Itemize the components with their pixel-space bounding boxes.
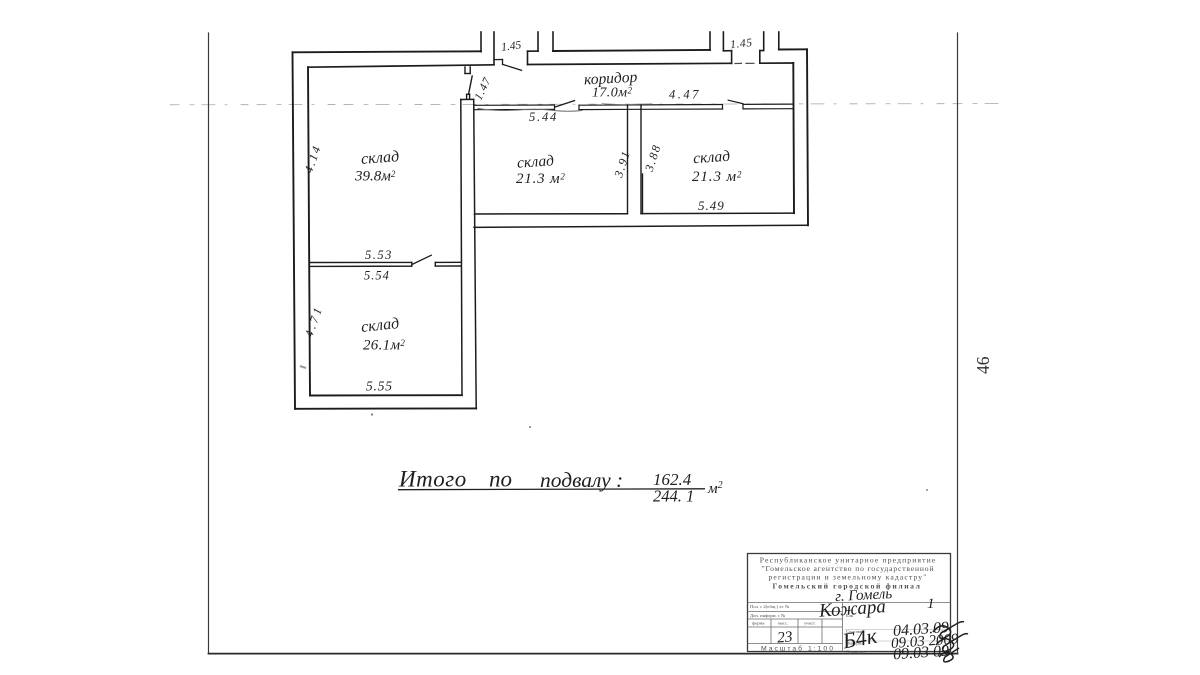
svg-text:5.54: 5.54: [364, 269, 390, 283]
svg-text:масс.: масс.: [778, 621, 788, 626]
svg-text:5.49: 5.49: [698, 198, 725, 213]
svg-text:17.0м2: 17.0м2: [592, 86, 632, 101]
svg-text:Итого: Итого: [398, 467, 467, 492]
svg-text:3.91: 3.91: [611, 148, 633, 180]
svg-text:09.03 09: 09.03 09: [893, 642, 950, 663]
svg-text:Пол. с 2(общ.) эт. №: Пол. с 2(общ.) эт. №: [750, 604, 790, 609]
svg-text:4.47: 4.47: [669, 88, 701, 102]
svg-text:регистрации и земельному кадас: регистрации и земельному кадастру": [768, 573, 927, 582]
svg-text:склад: склад: [360, 315, 400, 336]
svg-text:1: 1: [927, 596, 935, 612]
svg-text:39.8м2: 39.8м2: [354, 169, 396, 185]
svg-text:1.45: 1.45: [501, 39, 523, 53]
svg-text:3.88: 3.88: [642, 142, 664, 174]
svg-text:форма: форма: [752, 621, 764, 626]
svg-text:21.3 м2: 21.3 м2: [516, 171, 566, 187]
svg-text:склад: склад: [516, 152, 554, 172]
svg-text:4.14: 4.14: [301, 143, 324, 175]
svg-text:Масштаб 1:100: Масштаб 1:100: [761, 645, 835, 653]
svg-text:1.47: 1.47: [473, 75, 494, 102]
svg-text:Б4к: Б4к: [840, 623, 880, 654]
svg-text:участ.: участ.: [804, 621, 816, 626]
svg-text:м2: м2: [707, 480, 723, 497]
svg-text:Доп. информ. с №: Доп. информ. с №: [750, 613, 786, 618]
svg-text:4.71: 4.71: [302, 303, 326, 339]
svg-text:1.45: 1.45: [730, 37, 754, 51]
svg-text:23: 23: [776, 628, 793, 646]
svg-text:46: 46: [973, 356, 993, 374]
svg-text:5.44: 5.44: [529, 110, 558, 124]
svg-text:21.3 м2: 21.3 м2: [692, 169, 742, 185]
svg-text:склад: склад: [693, 148, 731, 168]
svg-text:26.1м2: 26.1м2: [363, 338, 405, 354]
svg-text:подвалу :: подвалу :: [540, 468, 623, 492]
svg-text:по: по: [489, 467, 512, 492]
svg-text:244. 1: 244. 1: [653, 487, 694, 506]
svg-text:Кожара: Кожара: [817, 596, 886, 622]
svg-text:склад: склад: [360, 148, 399, 168]
svg-text:5.55: 5.55: [366, 379, 393, 394]
svg-text:5.53: 5.53: [365, 248, 393, 262]
